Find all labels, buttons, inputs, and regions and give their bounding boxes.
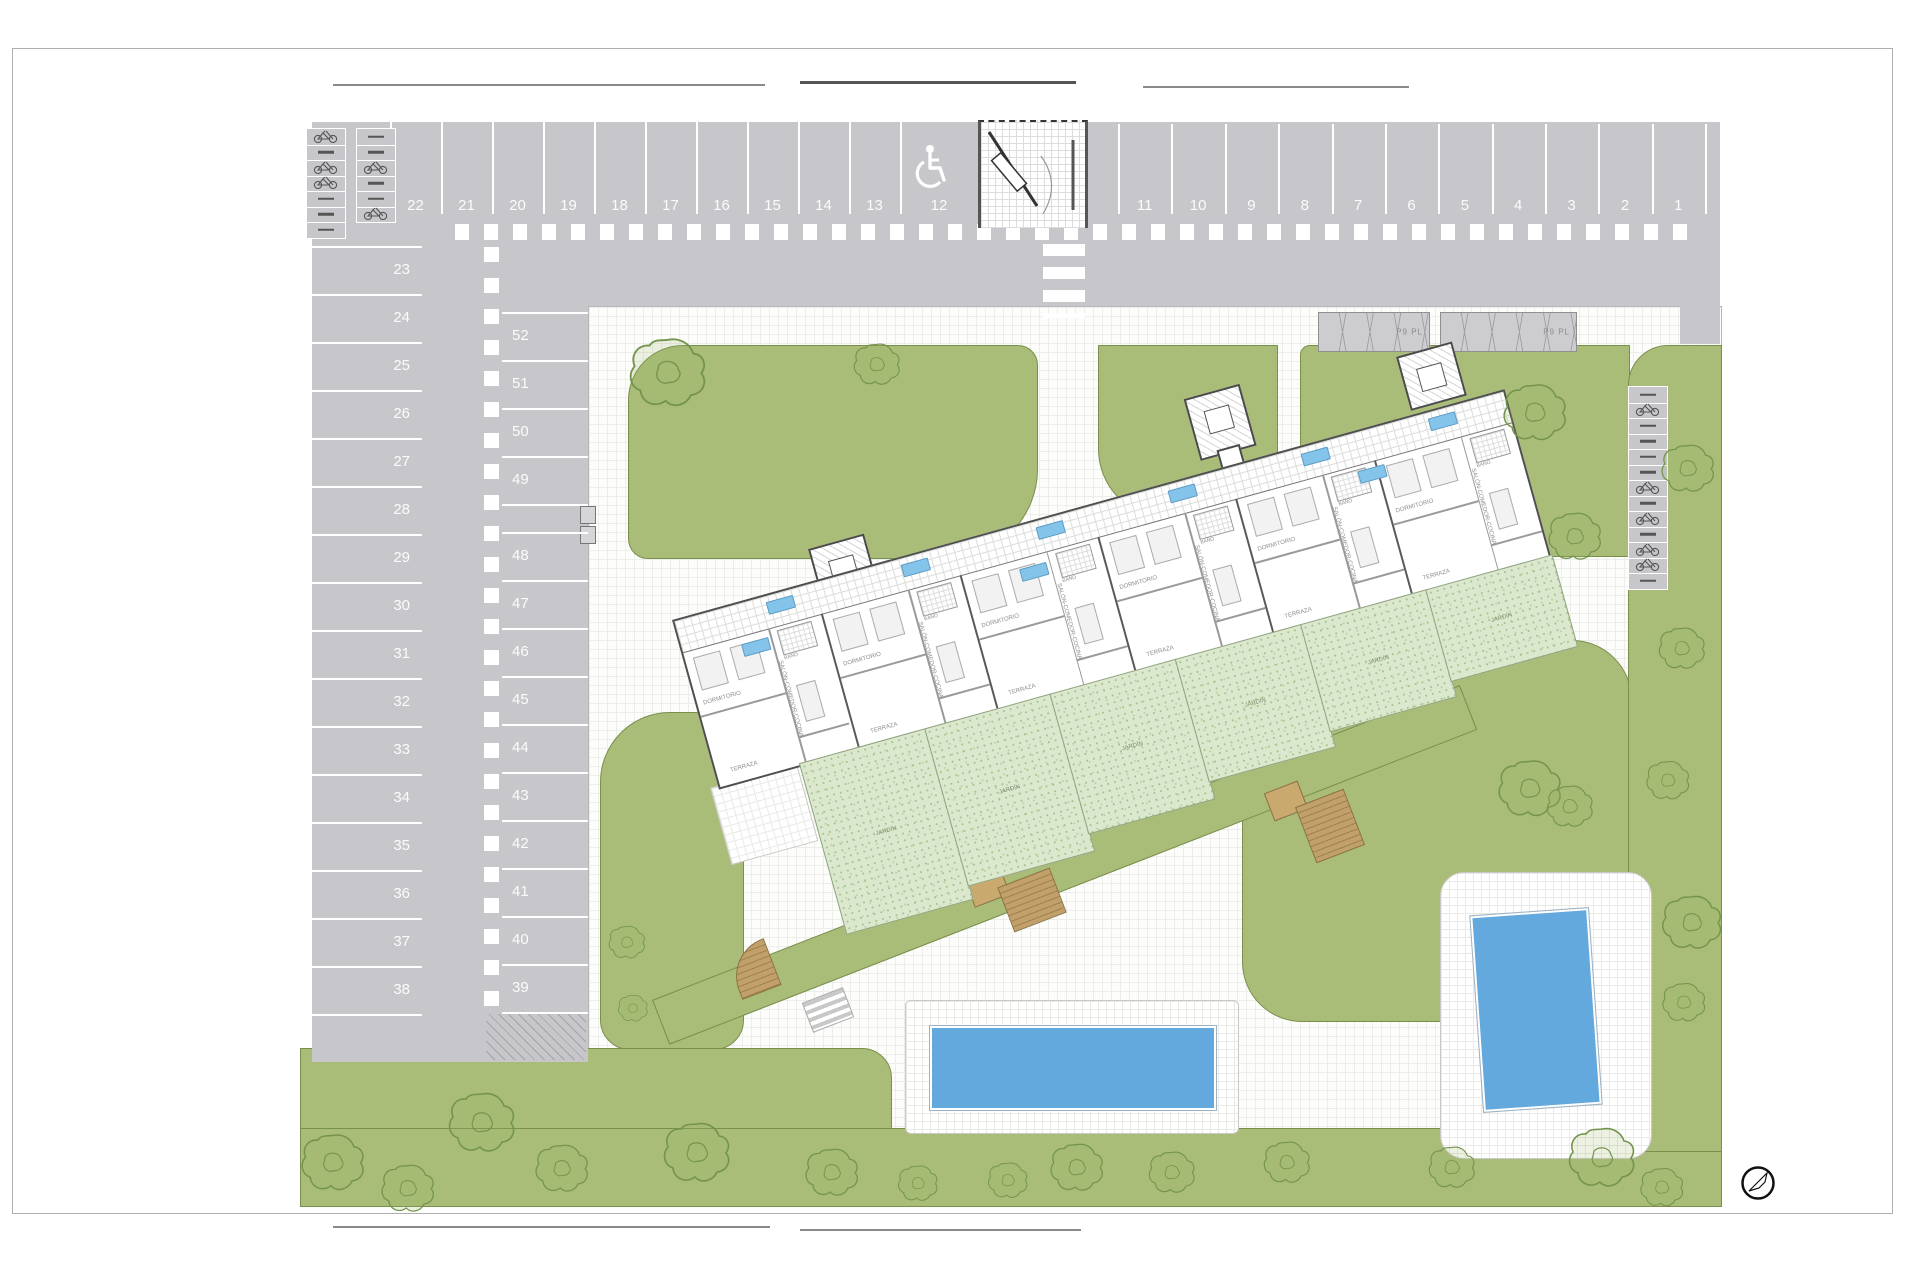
tree-icon bbox=[1662, 445, 1713, 491]
tree-icon bbox=[1641, 1169, 1683, 1206]
tree-icon bbox=[1264, 1142, 1309, 1182]
trees-layer bbox=[0, 0, 1920, 1280]
tree-icon bbox=[631, 339, 705, 405]
tree-icon bbox=[1663, 984, 1705, 1021]
tree-icon bbox=[1051, 1144, 1102, 1190]
tree-icon bbox=[302, 1135, 363, 1189]
tree-icon bbox=[450, 1094, 514, 1151]
tree-icon bbox=[1549, 513, 1600, 559]
tree-icon bbox=[1647, 762, 1689, 799]
tree-icon bbox=[854, 344, 899, 384]
tree-icon bbox=[1149, 1152, 1194, 1192]
tree-icon bbox=[1663, 896, 1721, 948]
tree-icon bbox=[1429, 1147, 1474, 1187]
tree-icon bbox=[665, 1124, 729, 1181]
tree-icon bbox=[382, 1165, 433, 1211]
tree-icon bbox=[609, 926, 644, 958]
tree-icon bbox=[1504, 385, 1565, 439]
tree-icon bbox=[536, 1145, 587, 1191]
tree-icon bbox=[989, 1163, 1027, 1197]
wheelchair-icon bbox=[908, 142, 952, 198]
tree-icon bbox=[1570, 1129, 1634, 1186]
tree-icon bbox=[1547, 786, 1592, 826]
tree-icon bbox=[618, 995, 647, 1021]
tree-icon bbox=[1659, 628, 1704, 668]
tree-icon bbox=[899, 1166, 937, 1200]
tree-icon bbox=[806, 1149, 857, 1195]
compass-icon bbox=[1735, 1160, 1781, 1206]
